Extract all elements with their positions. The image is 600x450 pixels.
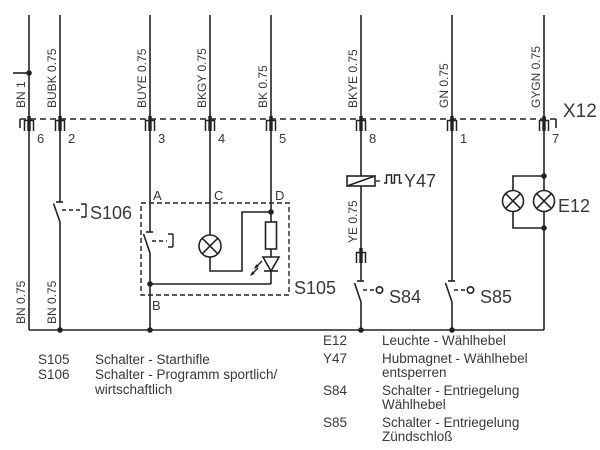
solenoid-diagonal (347, 176, 375, 186)
legend-description: Schalter - Entriegelung Zündschloß (382, 416, 519, 444)
terminal-label: A (153, 188, 162, 203)
legend-entry: Y47 Hubmagnet - Wählhebel entsperren (323, 352, 593, 380)
actuator-end-icon (168, 234, 173, 247)
wire-label: YE 0.75 (346, 200, 360, 243)
component-label: S105 (294, 278, 336, 298)
switch-blade (355, 283, 362, 302)
legend-id: S106 (38, 367, 95, 382)
wiring-diagram-page: X12 6 2 3 4 5 8 1 7 BN 1 BUBK 0.75 BUYE … (0, 0, 600, 450)
component-label: Y47 (404, 171, 436, 191)
pin-number: 5 (279, 131, 286, 146)
connector-label: X12 (563, 101, 597, 122)
inline-connector-icon (357, 248, 366, 263)
junction-dot (449, 327, 455, 333)
pin-number: 3 (158, 131, 165, 146)
component-s85: S85 (446, 281, 513, 307)
pin-number: 1 (460, 131, 467, 146)
legend-description: Schalter - Entriegelung Wählhebel (382, 384, 519, 412)
legend-description: Schalter - Starthifle (95, 352, 210, 367)
legend-line: Schalter - Entriegelung (382, 384, 519, 398)
legend-line: Wählhebel (382, 398, 519, 412)
wire-label: BKGY 0.75 (195, 48, 209, 108)
legend-id: S105 (38, 352, 95, 367)
pin-number: 8 (369, 131, 376, 146)
legend-line: Hubmagnet - Wählhebel (382, 352, 528, 366)
led-icon (250, 257, 279, 276)
pin-number: 4 (218, 131, 225, 146)
lamp-branch-wire (210, 212, 271, 271)
connector-x12: X12 6 2 3 4 5 8 1 7 (20, 101, 597, 146)
component-s105: A C D B (141, 188, 336, 313)
junction-dot (26, 70, 32, 76)
terminal-label: C (214, 188, 223, 203)
legend-line: Leuchte - Wählhebel (382, 334, 506, 348)
junction-dot (57, 327, 63, 333)
wire-label: BN 0.75 (45, 280, 59, 324)
pin-number: 6 (37, 131, 44, 146)
legend-line: entsperren (382, 366, 528, 380)
pushbutton-icon (376, 287, 382, 293)
legend-id: S84 (323, 384, 382, 398)
component-label: S106 (90, 203, 132, 223)
junction-dot (358, 327, 364, 333)
pin-number: 2 (68, 131, 75, 146)
legend-line: Schalter - Programm sportlich/ (95, 367, 277, 382)
lamp-icon (534, 191, 555, 212)
component-label: E12 (558, 196, 590, 216)
pulse-waveform-icon (384, 175, 402, 183)
pin-number: 7 (552, 131, 559, 146)
wires (13, 15, 544, 333)
legend-line: Zündschloß (382, 430, 519, 444)
wire-label: BUBK 0.75 (45, 48, 59, 108)
resistor-icon (266, 222, 277, 249)
legend-id: Y47 (323, 352, 382, 366)
legend-description: Hubmagnet - Wählhebel entsperren (382, 352, 528, 380)
legend-right: E12 Leuchte - Wählhebel Y47 Hubmagnet - … (323, 334, 593, 448)
wire-label: GN 0.75 (437, 63, 451, 108)
legend-entry: E12 Leuchte - Wählhebel (323, 334, 593, 348)
component-s106: S106 (54, 202, 133, 223)
wire-label: BN 0.75 (14, 280, 28, 324)
legend-entry: S106 Schalter - Programm sportlich/ wirt… (38, 367, 308, 397)
wire-label: GYGN 0.75 (529, 46, 543, 108)
legend-description: Leuchte - Wählhebel (382, 334, 506, 348)
legend-id: S85 (323, 416, 382, 430)
switch-blade (144, 234, 151, 253)
wire-label: BUYE 0.75 (135, 48, 149, 108)
actuator-end-icon (81, 204, 86, 217)
lamp-icon (199, 235, 221, 257)
component-label: S84 (389, 287, 421, 307)
switch-blade (54, 204, 61, 223)
wire-labels-top: BN 1 BUBK 0.75 BUYE 0.75 BKGY 0.75 BK 0.… (14, 46, 543, 108)
wire-label: BN 1 (14, 81, 28, 108)
lamp-icon (503, 191, 524, 212)
wire-labels-bottom: BN 0.75 BN 0.75 YE 0.75 (14, 200, 360, 324)
junction-dot (147, 281, 153, 287)
legend-line: Schalter - Entriegelung (382, 416, 519, 430)
wire-label: BKYE 0.75 (346, 49, 360, 108)
lamp-parallel-branch (513, 176, 544, 228)
wire-label: BK 0.75 (256, 65, 270, 108)
switch-blade (446, 283, 453, 302)
legend-entry: S84 Schalter - Entriegelung Wählhebel (323, 384, 593, 412)
terminal-label: D (275, 188, 284, 203)
legend-line: wirtschaftlich (95, 382, 277, 397)
terminal-label: B (152, 298, 161, 313)
component-s84: S84 (355, 281, 422, 307)
legend-entry: S105 Schalter - Starthifle (38, 352, 308, 367)
junction-dot (147, 327, 153, 333)
legend-description: Schalter - Programm sportlich/ wirtschaf… (95, 367, 277, 397)
legend-entry: S85 Schalter - Entriegelung Zündschloß (323, 416, 593, 444)
component-e12: E12 (503, 173, 591, 231)
legend-id: E12 (323, 334, 382, 348)
component-label: S85 (480, 287, 512, 307)
pushbutton-icon (467, 287, 473, 293)
legend-line: Schalter - Starthifle (95, 352, 210, 367)
legend-left: S105 Schalter - Starthifle S106 Schalter… (38, 352, 308, 397)
